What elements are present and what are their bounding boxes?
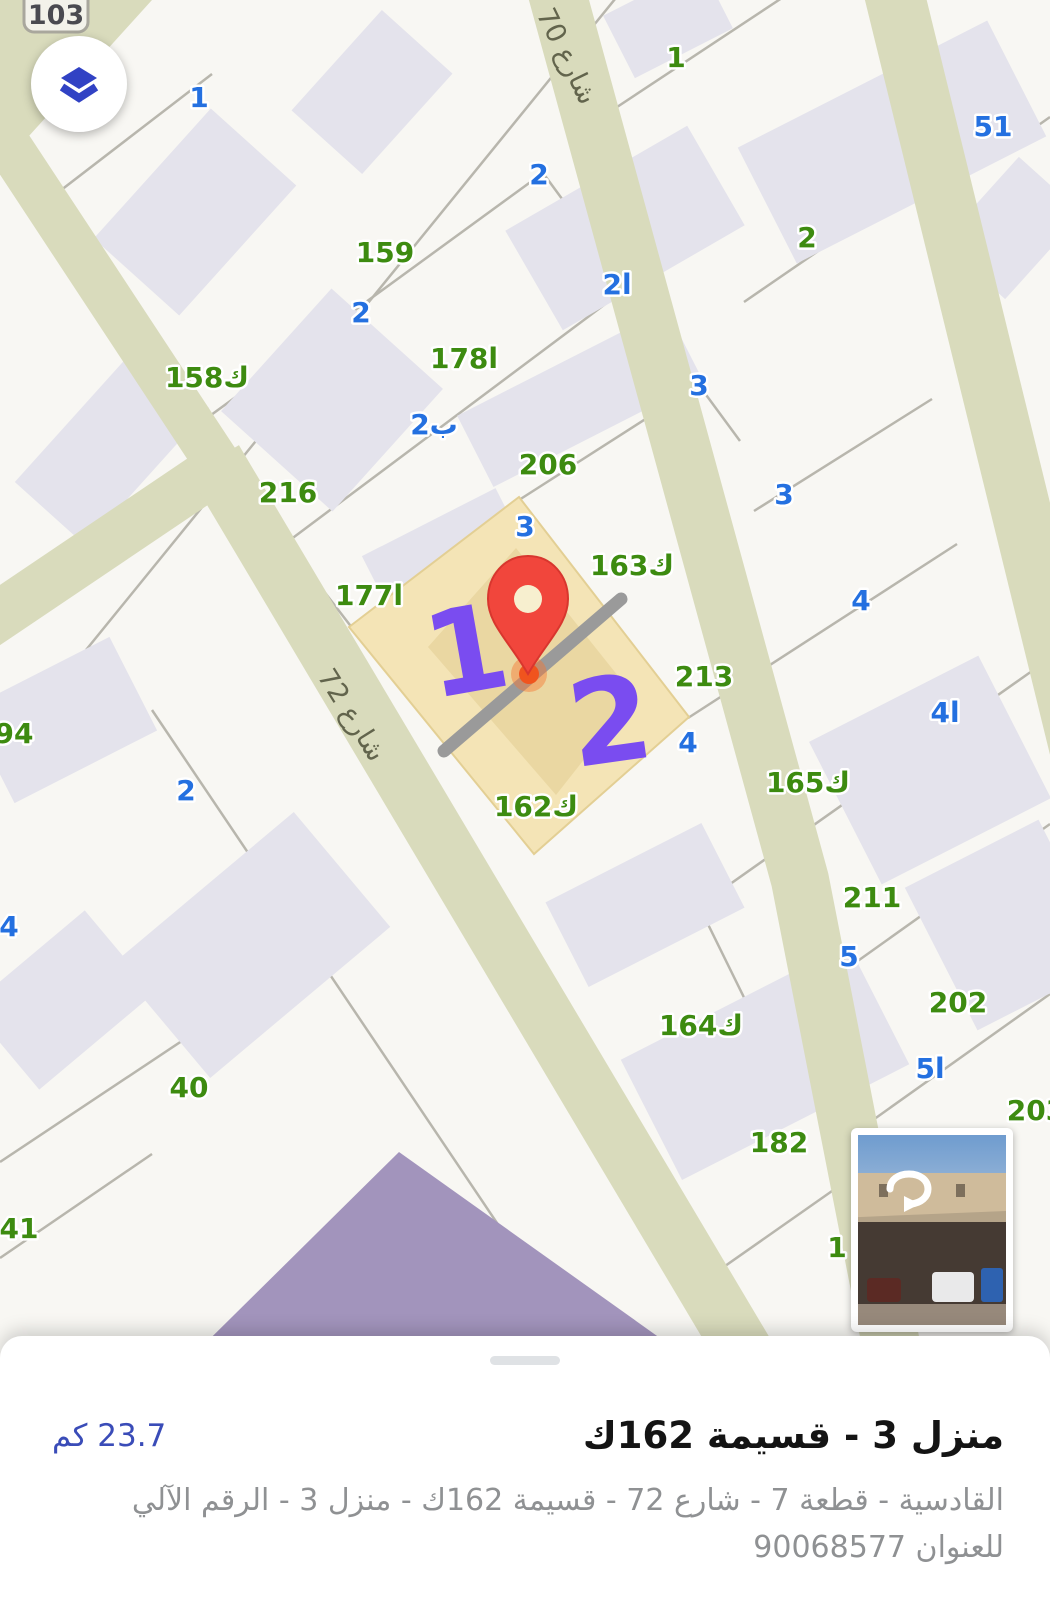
pin-hole	[514, 585, 542, 613]
parcel-label: 5ا	[915, 1052, 944, 1085]
parcel-label: 1	[666, 41, 685, 74]
parcel-label: 4ا	[930, 696, 959, 729]
parcel-label: 4	[678, 726, 697, 759]
parcel-label: 41	[0, 1212, 38, 1245]
address-details: القادسية - قطعة 7 - شارع 72 - قسيمة 162ك…	[0, 1458, 1050, 1571]
map-app-screen: { "colors": { "accent_blue": "#3142c4", …	[0, 0, 1050, 1600]
parcel-label: 177ا	[335, 579, 403, 612]
parcel-label: 2	[797, 221, 816, 254]
parcel-label: 182	[750, 1126, 808, 1159]
parcel-label: 206	[519, 448, 577, 481]
parcel-label: 2ا	[602, 268, 631, 301]
parcel-label: 178ا	[430, 342, 498, 375]
parcel-label: 165ك	[766, 766, 850, 799]
sv-car-blue	[981, 1268, 1003, 1302]
street-view-thumbnail[interactable]	[851, 1128, 1013, 1332]
parcel-label: 164ك	[659, 1009, 743, 1042]
parcel-label: 2	[176, 774, 195, 807]
parcel-label: 3	[515, 510, 534, 543]
sv-car-dark	[867, 1278, 901, 1302]
parcel-label: 216	[259, 476, 317, 509]
parcel-label: 3	[774, 478, 793, 511]
parcel-label: 163ك	[590, 549, 674, 582]
parcel-label: 94	[0, 717, 33, 750]
parcel-label: 51	[974, 110, 1013, 143]
parcel-label: 202	[929, 986, 987, 1019]
parcel-label: 211	[843, 881, 901, 914]
parcel-label: 1	[189, 81, 208, 114]
sheet-drag-handle[interactable]	[490, 1356, 560, 1365]
parcel-label: 203	[1007, 1094, 1050, 1127]
parcel-label: 162ك	[494, 790, 578, 823]
parcel-label: 5	[839, 940, 858, 973]
sv-window	[956, 1184, 965, 1197]
parcel-label: 1	[827, 1231, 846, 1264]
address-title: منزل 3 - قسيمة 162ك	[186, 1414, 1004, 1458]
parcel-label: 159	[356, 236, 414, 269]
street-view-rotate-icon	[876, 1163, 942, 1215]
sv-ground	[858, 1304, 1006, 1325]
parcel-label: 158ك	[165, 361, 249, 394]
parcel-label: 4	[0, 910, 19, 943]
route-shield-number: 103	[28, 0, 84, 31]
parcel-label: 213	[675, 660, 733, 693]
sv-car-white	[932, 1272, 974, 1302]
parcel-label: 40	[170, 1071, 209, 1104]
parcel-label: 2ب	[410, 408, 458, 441]
route-shield: 103	[24, 0, 88, 32]
parcel-label: 2	[529, 158, 548, 191]
layers-button[interactable]	[31, 36, 127, 132]
bottom-sheet: منزل 3 - قسيمة 162ك 23.7 كم القادسية - ق…	[0, 1336, 1050, 1600]
parcel-label: 4	[851, 584, 870, 617]
parcel-label: 2	[351, 296, 370, 329]
layers-icon	[55, 60, 103, 108]
distance-value: 23.7 كم	[52, 1414, 166, 1454]
parcel-label: 3	[689, 369, 708, 402]
street-view-photo	[858, 1135, 1006, 1325]
